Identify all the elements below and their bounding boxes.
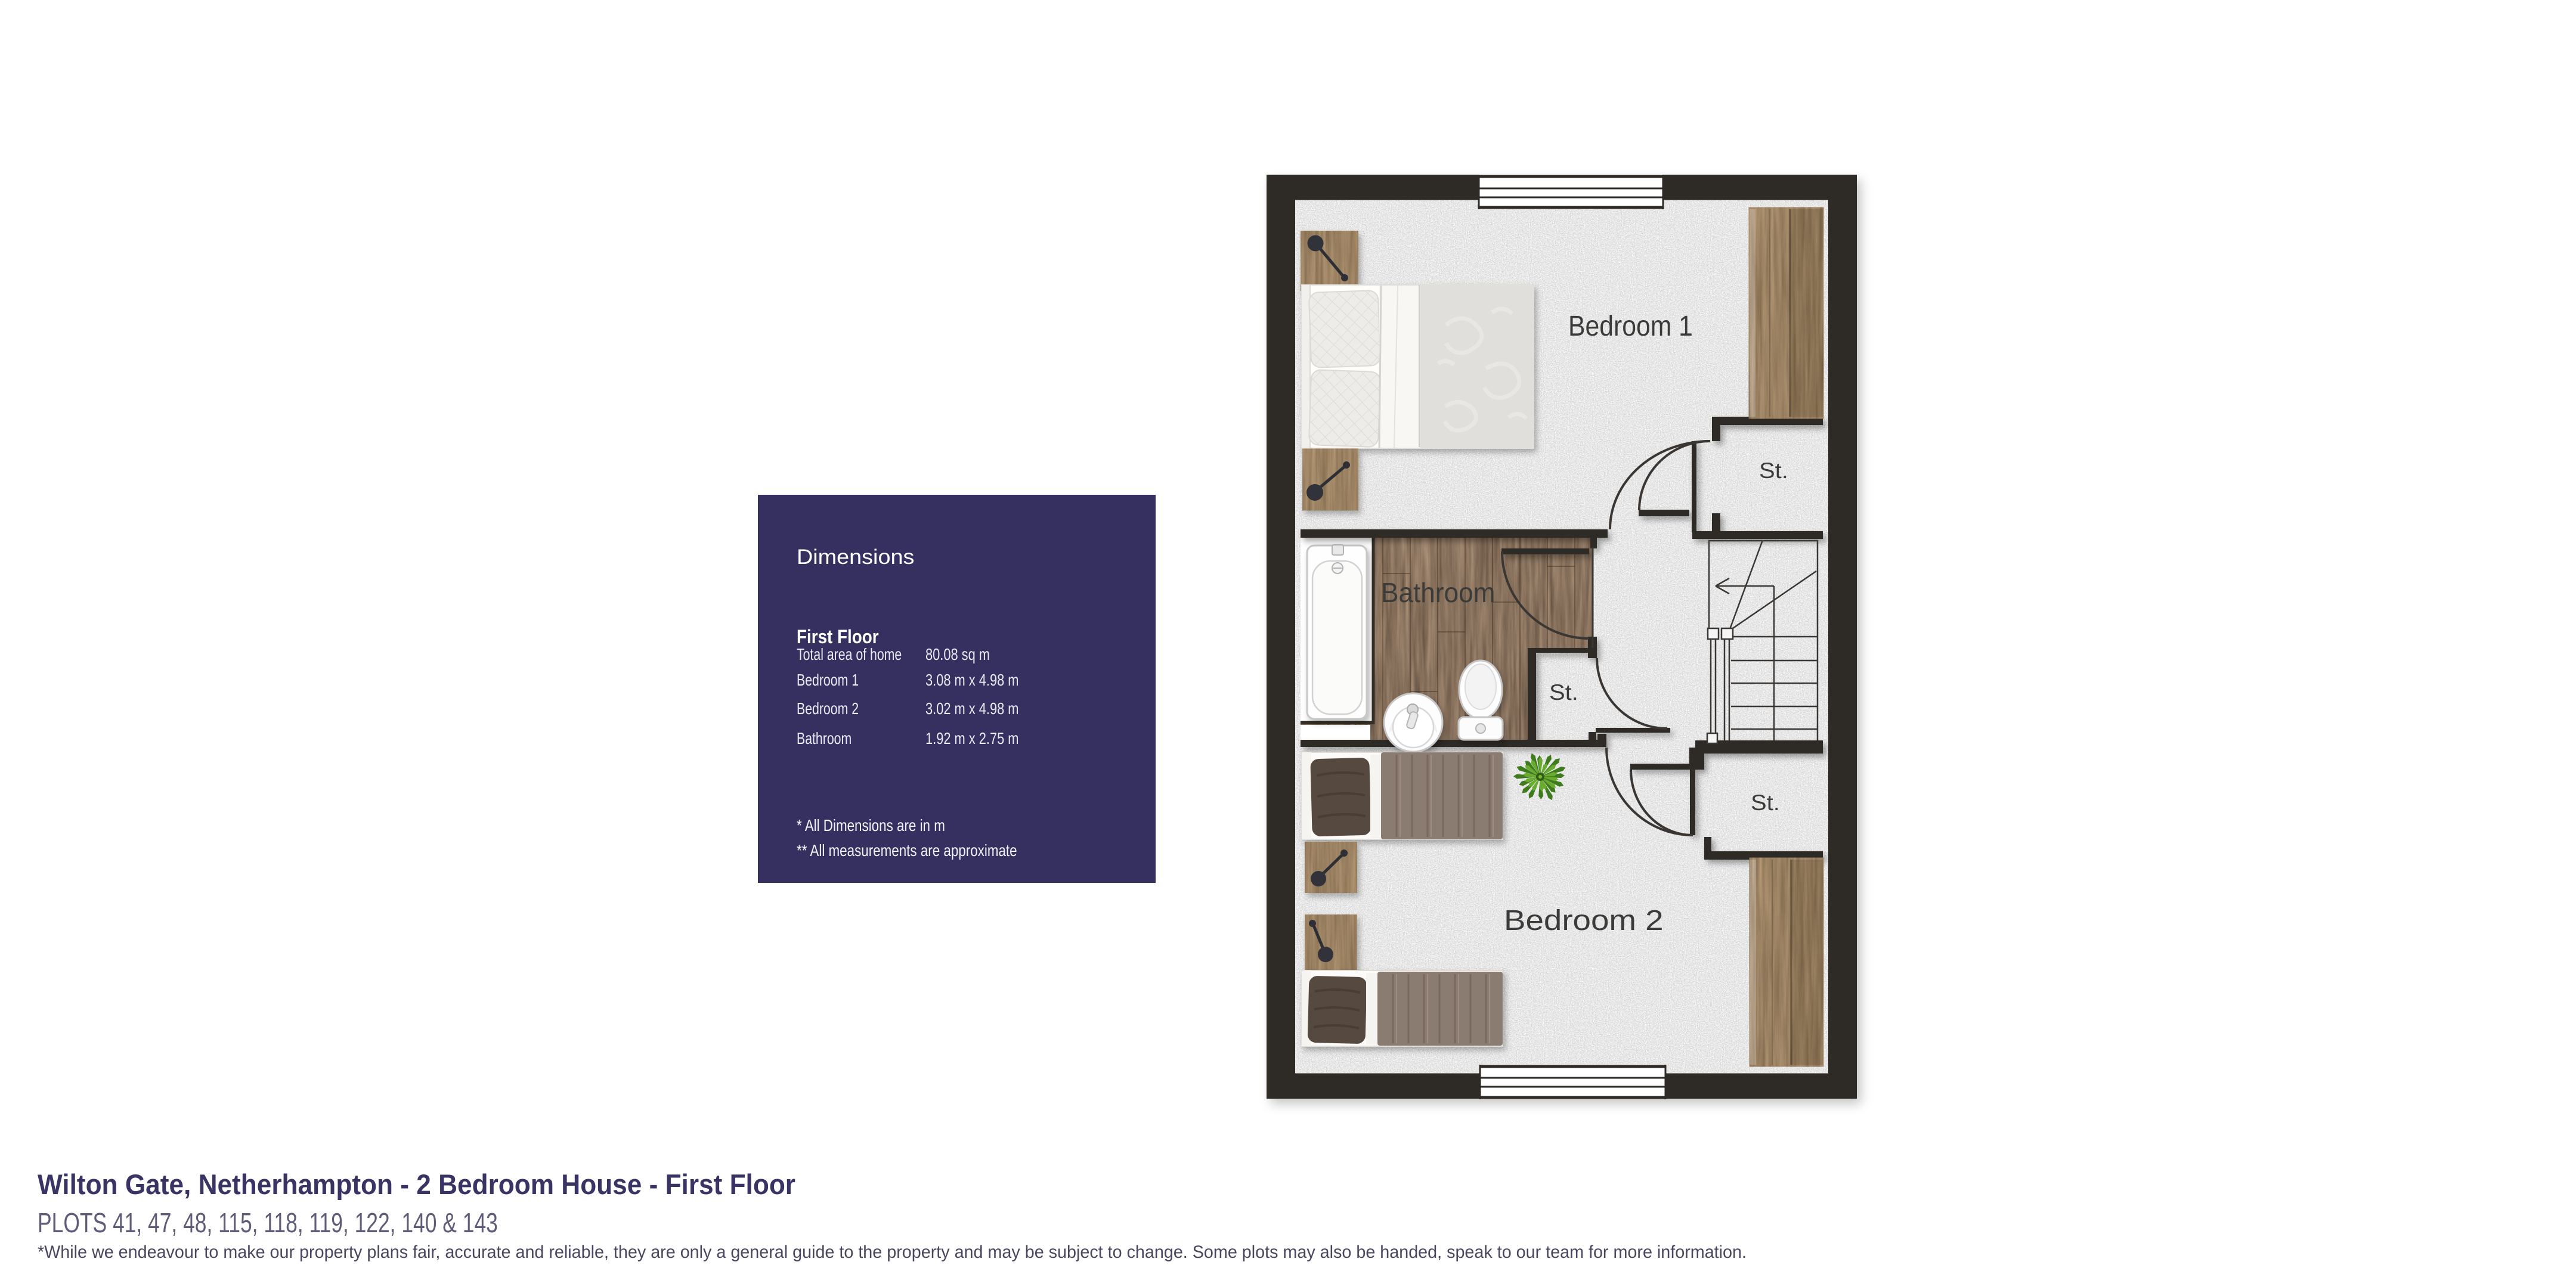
svg-text:Bathroom: Bathroom: [797, 729, 852, 748]
svg-text:1.92 m x 2.75 m: 1.92 m x 2.75 m: [925, 729, 1018, 748]
svg-text:PLOTS 41, 47, 48, 115, 118, 11: PLOTS 41, 47, 48, 115, 118, 119, 122, 14…: [38, 1208, 498, 1239]
svg-text:Bedroom 1: Bedroom 1: [1568, 310, 1693, 342]
svg-text:First Floor: First Floor: [797, 627, 879, 647]
svg-text:Bathroom: Bathroom: [1381, 577, 1495, 608]
svg-text:Dimensions: Dimensions: [797, 545, 914, 568]
svg-text:80.08 sq m: 80.08 sq m: [925, 645, 990, 663]
svg-text:Bedroom 2: Bedroom 2: [1504, 904, 1664, 936]
svg-text:** All measurements are approx: ** All measurements are approximate: [797, 842, 1017, 860]
svg-text:3.08 m x 4.98 m: 3.08 m x 4.98 m: [925, 671, 1018, 689]
svg-text:* All Dimensions are in m: * All Dimensions are in m: [797, 817, 945, 835]
svg-text:St.: St.: [1751, 790, 1780, 815]
svg-text:St.: St.: [1759, 458, 1788, 483]
svg-text:Wilton Gate, Netherhampton - 2: Wilton Gate, Netherhampton - 2 Bedroom H…: [38, 1169, 795, 1201]
svg-text:3.02 m x 4.98 m: 3.02 m x 4.98 m: [925, 699, 1018, 718]
svg-text:Bedroom 1: Bedroom 1: [797, 671, 859, 690]
svg-text:Bedroom 2: Bedroom 2: [797, 699, 859, 718]
svg-text:St.: St.: [1549, 680, 1578, 705]
svg-text:*While we endeavour to make ou: *While we endeavour to make our property…: [38, 1242, 1747, 1262]
svg-text:Total area of home: Total area of home: [797, 645, 902, 664]
